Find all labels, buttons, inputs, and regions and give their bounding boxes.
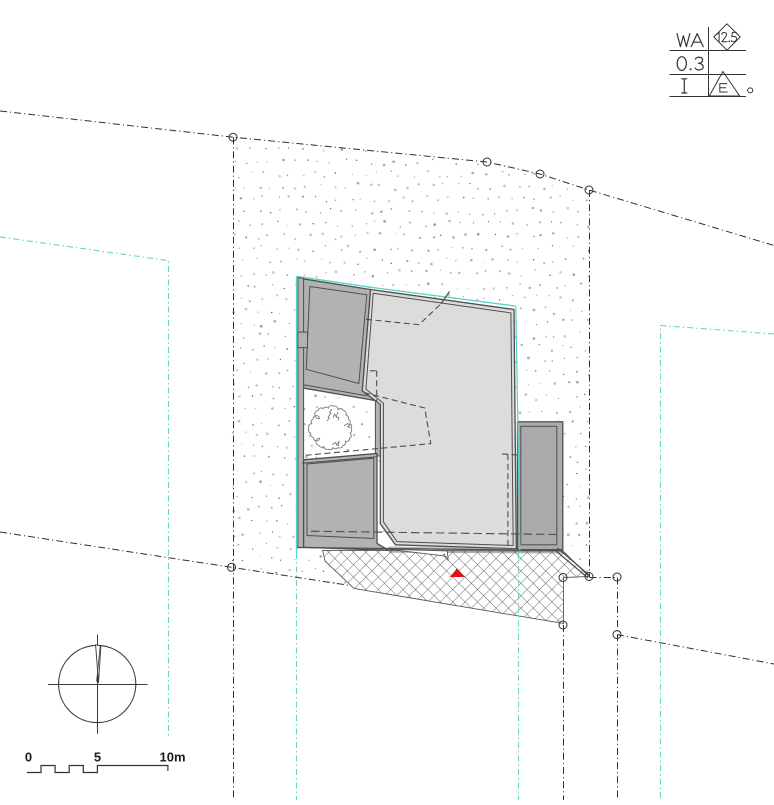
svg-text:5: 5 [94,750,101,765]
svg-text:0: 0 [25,750,32,765]
svg-text:10m: 10m [159,750,185,765]
